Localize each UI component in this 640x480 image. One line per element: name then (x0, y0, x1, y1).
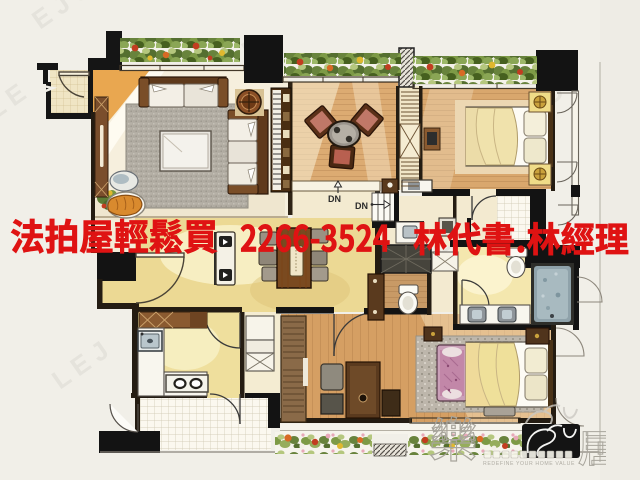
svg-text:DN: DN (355, 201, 368, 211)
svg-text:DN: DN (328, 194, 341, 204)
svg-text:REDEFINE YOUR HOME VALUE: REDEFINE YOUR HOME VALUE (483, 461, 575, 467)
